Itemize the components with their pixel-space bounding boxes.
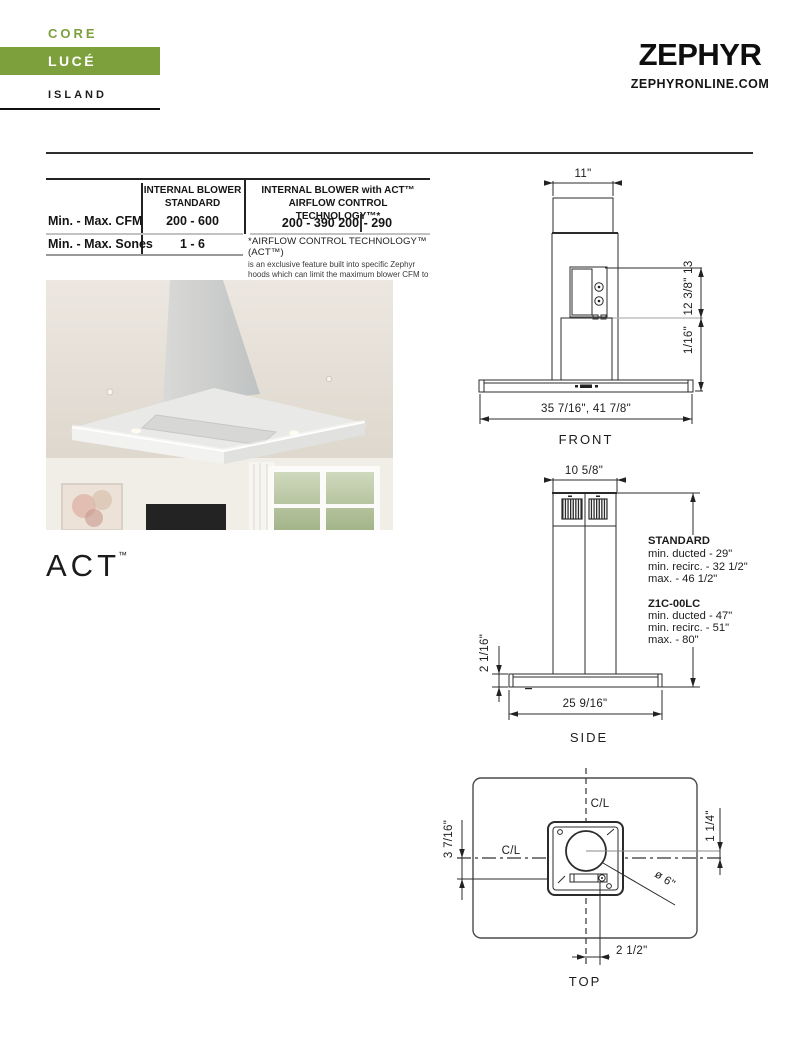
front-housing [561,318,612,380]
side-chimney-split [553,493,616,674]
header-line: INTERNAL BLOWER with ACT™ [246,184,430,197]
spec-sheet-page: CORE LUCÉ ISLAND ZEPHYR ZEPHYRONLINE.COM… [0,0,802,1037]
top-mounting-plate [548,822,623,895]
window-pane [326,472,374,530]
art-shape [92,490,112,510]
side-vent-grille [589,499,607,519]
art-shape [85,509,103,527]
front-duct-width-dim [544,181,622,196]
top-view-drawing: C/L C/L 3 7/16" 1 1/4" ø 6" 2 1/2" TOP [430,760,790,1010]
front-view-drawing: 11" 12 3/8" 13 1/16" 35 7/16", 41 7/8" F… [440,160,720,460]
top-offset-right-label: 1 1/4" [705,810,717,841]
value-divider [360,214,362,232]
brand-underline [0,108,160,110]
cfm-act-value: 200 - 390 200 - 290 [244,214,430,232]
mount-type-label: ISLAND [48,89,107,101]
website-link[interactable]: ZEPHYRONLINE.COM [610,77,790,91]
front-blower-box [570,267,607,317]
cfm-standard-value: 200 - 600 [141,214,244,228]
tv [146,504,226,530]
cfm-act-right: - 290 [364,216,393,230]
act-text: ACT [46,548,120,583]
collection-label: CORE [48,26,98,41]
duct-diameter-label: ø 6" [652,868,677,890]
side-canopy [509,674,662,687]
standard-spec-line: min. ducted - 29" [648,548,732,560]
side-view-title: SIDE [570,730,608,745]
front-blower-inner [572,269,592,315]
header-divider-rule [46,152,753,154]
front-chimney-sides [552,233,618,380]
front-upper-duct [553,198,613,233]
act-wordmark: ACT™ [46,548,127,584]
row-label-cfm: Min. - Max. CFM [48,214,142,228]
canopy-control [595,385,598,388]
recessed-light [107,389,113,395]
front-view-title: FRONT [559,432,614,447]
column-header-standard: INTERNAL BLOWER STANDARD [142,184,243,210]
row-label-sones: Min. - Max. Sones [48,237,153,251]
knob-center [598,286,601,289]
window-pane [274,472,320,530]
top-view-title: TOP [569,974,602,989]
act-footnote-title: *AIRFLOW CONTROL TECHNOLOGY™ (ACT™) [248,236,432,258]
side-canopy-depth-label: 25 9/16" [563,698,608,710]
model-badge: LUCÉ [0,47,160,75]
model-spec-line: max. - 80" [648,634,699,646]
front-height-lower-label: 1/16" [683,326,695,354]
standard-spec-title: STANDARD [648,535,710,547]
canopy-tick [525,688,532,689]
canopy-control [580,385,592,389]
top-offset-left-label: 3 7/16" [443,820,455,858]
side-chimney-depth-dim [544,478,626,492]
side-chimney-depth-label: 10 5/8" [565,465,603,477]
grille-tab [568,496,572,498]
canopy-control [575,385,578,388]
table-row-rule [250,233,430,235]
front-height-upper-label: 12 3/8" 13 [683,260,695,315]
model-spec-line: min. recirc. - 51" [648,622,729,634]
header-line: STANDARD [142,197,243,210]
front-body-width-label: 35 7/16", 41 7/8" [541,403,631,415]
recessed-light [326,376,331,381]
table-top-border [46,178,430,180]
side-canopy-height-label: 2 1/16" [479,634,491,672]
standard-spec-line: min. recirc. - 32 1/2" [648,561,748,573]
model-spec-line: min. ducted - 47" [648,610,732,622]
product-photo [46,280,393,530]
side-view-drawing: 10 5/8" 2 1/16" STANDARD min. ducted - 2… [440,450,760,760]
top-offset-left-dim [457,820,549,900]
grille-tab [596,496,600,498]
header-line: INTERNAL BLOWER [142,184,243,197]
front-duct-width-label: 11" [575,168,592,180]
zephyr-wordmark: ZEPHYR [610,38,790,72]
table-bottom-border [46,254,243,256]
model-name: LUCÉ [48,53,96,69]
sones-standard-value: 1 - 6 [141,237,244,251]
slot-screw-center [601,877,603,879]
model-spec-title: Z1C-00LC [648,598,700,610]
side-vent-grille [562,499,582,519]
table-row-rule [46,233,243,235]
act-tm: ™ [118,550,127,560]
centerline-label-top: C/L [591,798,610,810]
centerline-label-left: C/L [502,845,521,857]
knob-center [598,300,601,303]
side-canopy-detail [513,674,658,687]
zephyr-logo-block: ZEPHYR ZEPHYRONLINE.COM [610,38,790,91]
hood-lamp [131,429,141,434]
cfm-act-left: 200 - 390 200 [282,216,359,230]
standard-spec-line: max. - 46 1/2" [648,573,717,585]
top-offset-bottom-label: 2 1/2" [616,945,647,957]
side-height-dim [616,493,700,687]
